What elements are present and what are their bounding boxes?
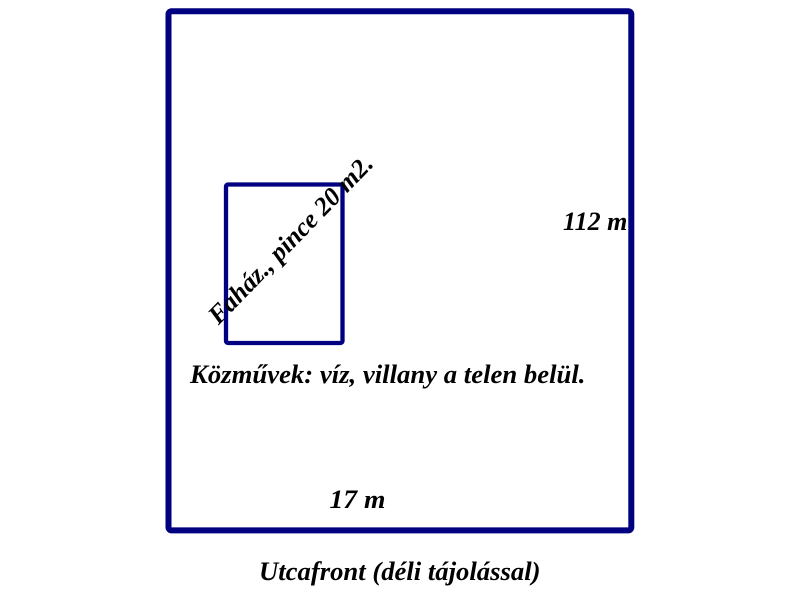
svg-text:Közművek: víz, villany a telen: Közművek: víz, villany a telen belül. <box>189 360 586 389</box>
svg-text:17 m: 17 m <box>330 485 386 514</box>
svg-text:Utcafront (déli tájolással): Utcafront (déli tájolással) <box>259 557 541 586</box>
svg-text:112 m: 112 m <box>563 207 627 236</box>
